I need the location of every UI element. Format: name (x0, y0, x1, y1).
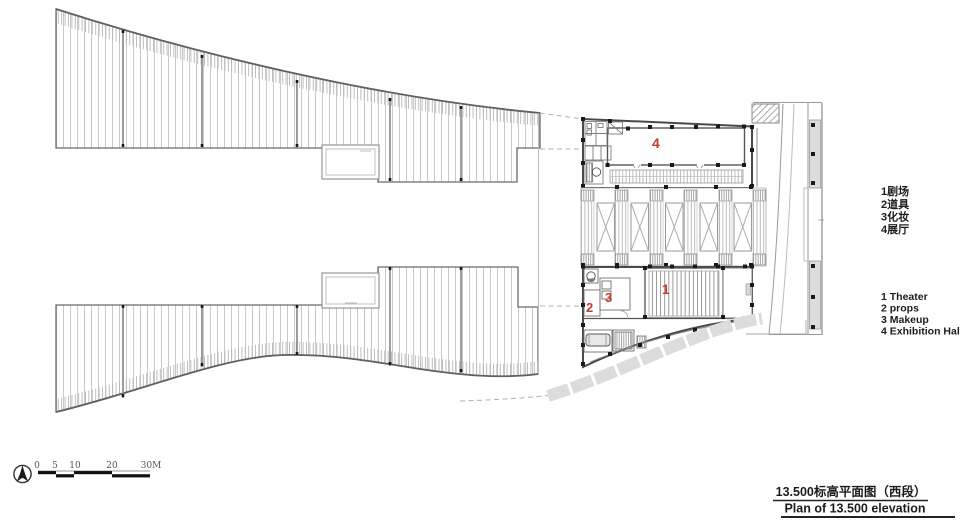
room-label-1: 1 (662, 282, 670, 297)
canopy-hatch-box (752, 104, 779, 123)
legend-en: 1 Theater 2 props 3 Makeup 4 Exhibition … (881, 291, 960, 338)
legend-cn-item: 1剧场 (881, 184, 909, 198)
sheet-title-en: Plan of 13.500 elevation (784, 502, 925, 516)
east-corridor-strip (769, 103, 824, 335)
scale-bar: 0 5 10 20 30M (34, 461, 161, 477)
north-arrow-icon (14, 465, 31, 482)
scale-label: 0 (34, 461, 40, 471)
room-label-4: 4 (652, 135, 660, 151)
link-box-upper (322, 145, 379, 179)
title-block: 13.500标高平面图（西段） Plan of 13.500 elevation (773, 484, 955, 517)
legend-cn: 1剧场 2道具 3化妆 4展厅 (881, 184, 909, 236)
link-box-lower (322, 273, 379, 308)
scale-label: 20 (106, 461, 118, 471)
scale-label: 30M (141, 461, 162, 471)
floorplan-sheet: 4 (0, 0, 960, 520)
exhibition-block: 4 (581, 103, 822, 189)
room-label-2: 2 (586, 300, 593, 315)
scale-label: 5 (52, 461, 58, 471)
sheet-title-cn: 13.500标高平面图（西段） (776, 484, 927, 499)
theater-seating (649, 271, 719, 316)
west-wing-upper (56, 9, 540, 182)
room-exhibition-hall (608, 128, 745, 165)
legend-en-item: 4 Exhibition Hall (881, 326, 960, 338)
legend-en-item: 2 props (881, 303, 919, 315)
legend-cn-item: 2道具 (881, 197, 909, 211)
scale-bar-segments (38, 471, 150, 477)
legend-cn-item: 3化妆 (881, 210, 909, 224)
stage-truss-band (581, 185, 766, 267)
floorplan-svg: 4 (0, 0, 960, 520)
west-wing-lower (56, 267, 538, 412)
legend-en-item: 3 Makeup (881, 314, 929, 326)
east-road-curves (769, 104, 794, 334)
scale-label: 10 (69, 461, 81, 471)
room-label-3: 3 (605, 290, 612, 305)
legend-en-item: 1 Theater (881, 291, 928, 303)
legend-cn-item: 4展厅 (881, 223, 909, 236)
